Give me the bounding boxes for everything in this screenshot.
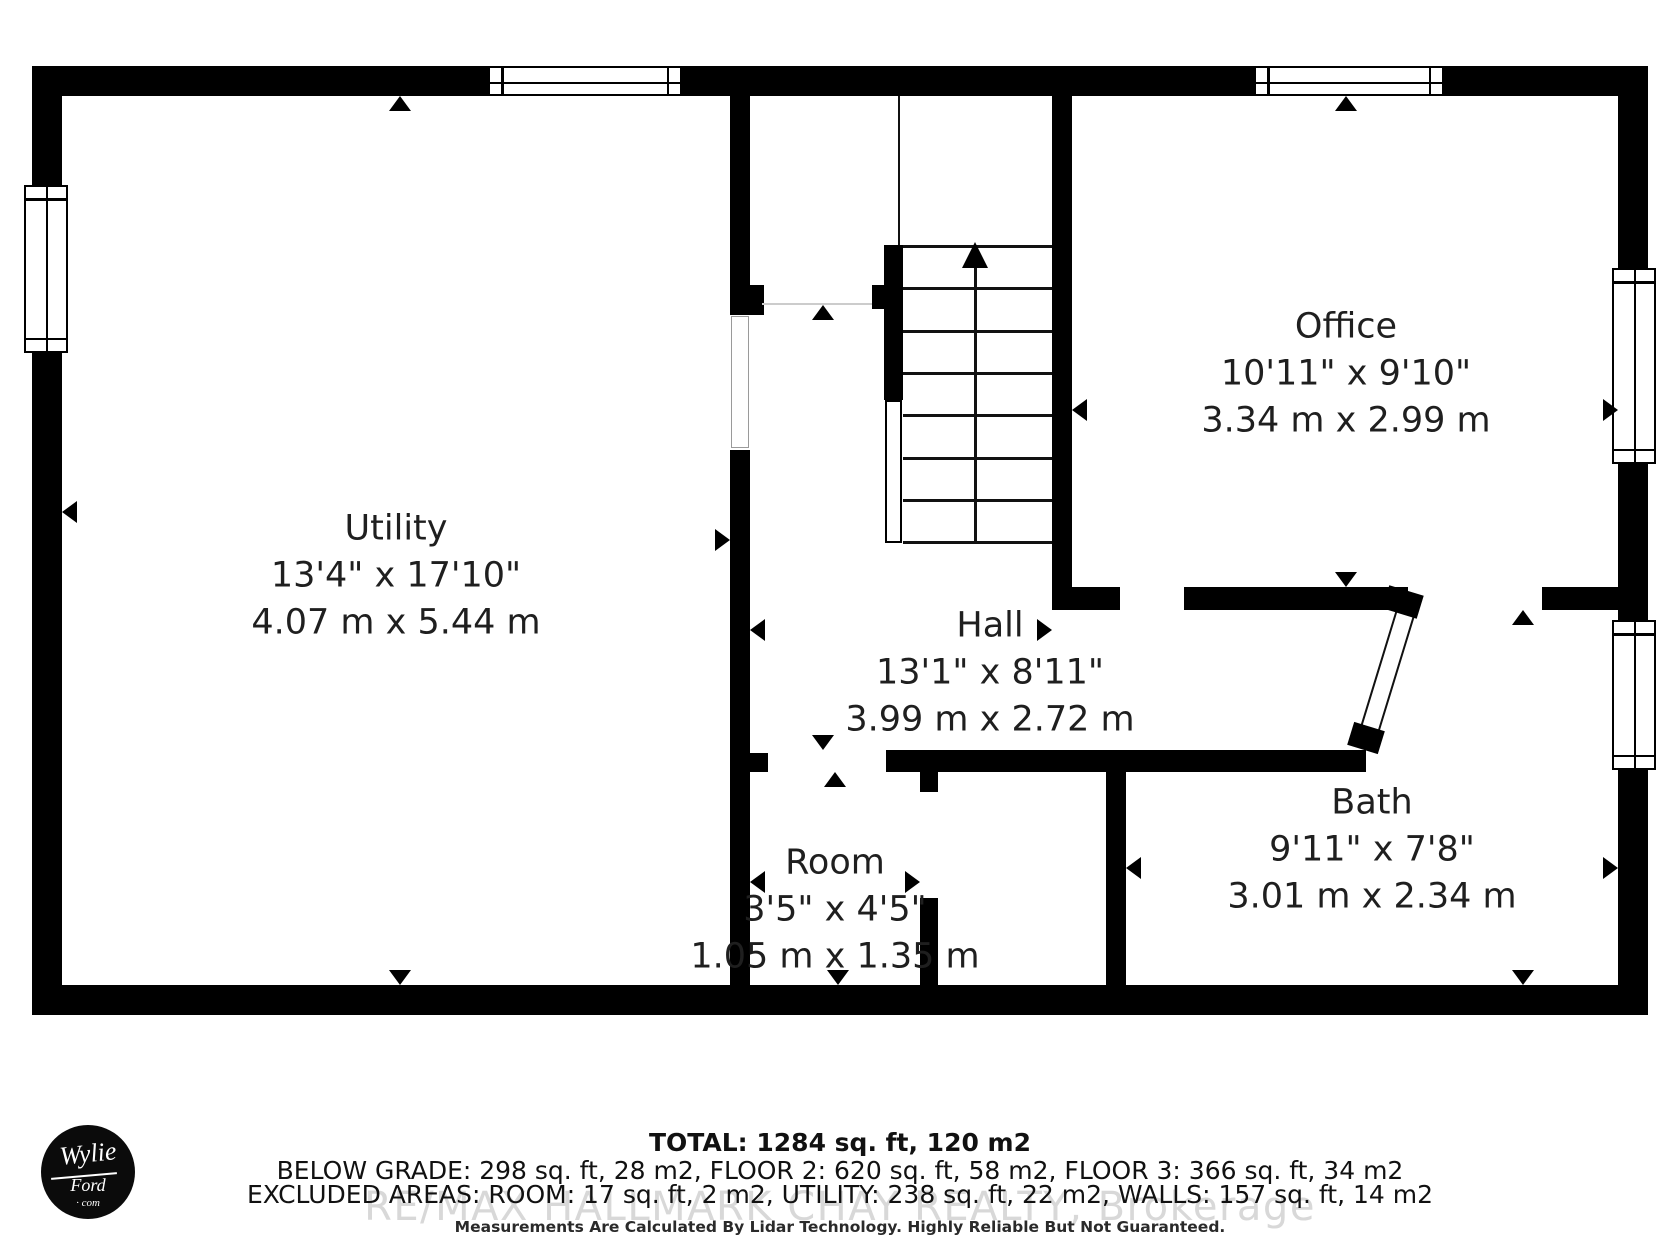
room-dim-imperial: 13'4" x 17'10"	[251, 553, 540, 600]
window-pane-line	[1256, 82, 1442, 84]
office-dimension-marker-icon	[1603, 399, 1618, 421]
hall-dimension-marker-icon	[812, 305, 834, 320]
stair-rail-jamb	[872, 285, 884, 309]
room-dim-metric: 1.05 m x 1.35 m	[690, 934, 979, 981]
floor-plan-page: Utility 13'4" x 17'10" 4.07 m x 5.44 m O…	[0, 0, 1680, 1260]
hall-bottom-wall	[886, 750, 1366, 772]
window-mullion	[1267, 68, 1270, 94]
stair-tread	[903, 287, 1052, 290]
room-name: Utility	[251, 506, 540, 553]
logo-line2: Ford	[41, 1175, 135, 1196]
stair-tread	[903, 330, 1052, 333]
utility-dimension-marker-icon	[389, 96, 411, 111]
office-bottom-wall-right	[1542, 587, 1618, 610]
room-dim-metric: 3.01 m x 2.34 m	[1227, 874, 1516, 921]
bath-left-wall	[1106, 772, 1126, 985]
stair-tread	[903, 541, 1052, 544]
room-dim-metric: 4.07 m x 5.44 m	[251, 600, 540, 647]
stair-rail-wall	[884, 245, 903, 400]
hall-door-leaf	[731, 316, 749, 448]
bath-dimension-marker-icon	[1512, 610, 1534, 625]
room-wall-jamb	[750, 753, 768, 772]
stair-tread	[903, 457, 1052, 460]
office-bottom-wall-left	[1052, 587, 1120, 610]
bath-dimension-marker-icon	[1512, 970, 1534, 985]
stair-tread	[903, 372, 1052, 375]
logo-line3: · com	[41, 1197, 135, 1209]
room-label-room: Room 3'5" x 4'5" 1.05 m x 1.35 m	[690, 840, 979, 981]
door-jamb	[750, 285, 764, 315]
utility-dimension-marker-icon	[389, 970, 411, 985]
window-pane-line	[1634, 622, 1636, 768]
hall-dimension-marker-icon	[1037, 619, 1052, 641]
window-mullion	[1614, 755, 1654, 758]
room-right-wall-upper-stub	[920, 772, 938, 792]
exterior-wall-bottom	[32, 985, 1648, 1015]
office-left-wall	[1052, 96, 1072, 610]
utility-dimension-marker-icon	[715, 529, 730, 551]
stair-tread	[903, 414, 1052, 417]
window-mullion	[501, 68, 504, 94]
window-mullion	[26, 198, 66, 201]
stair-railing	[885, 400, 902, 543]
window-bath-right	[1612, 620, 1656, 770]
room-dim-imperial: 10'11" x 9'10"	[1201, 351, 1490, 398]
room-name: Bath	[1227, 780, 1516, 827]
window-mullion	[1429, 68, 1432, 94]
room-dim-imperial: 9'11" x 7'8"	[1227, 827, 1516, 874]
window-mullion	[1614, 449, 1654, 452]
wylie-ford-logo: Wylie Ford · com	[41, 1125, 135, 1219]
stair-head-line	[898, 96, 900, 245]
exterior-wall-right	[1618, 66, 1648, 1015]
bath-dimension-marker-icon	[1603, 857, 1618, 879]
bath-dimension-marker-icon	[1126, 857, 1141, 879]
stairs-up-arrow-line	[974, 266, 977, 541]
window-mullion	[1614, 281, 1654, 284]
logo-line1: Wylie	[40, 1134, 137, 1174]
disclaimer-text: Measurements Are Calculated By Lidar Tec…	[0, 1218, 1680, 1236]
window-mullion	[667, 68, 670, 94]
room-label-office: Office 10'11" x 9'10" 3.34 m x 2.99 m	[1201, 304, 1490, 445]
hall-dimension-marker-icon	[750, 619, 765, 641]
window-pane-line	[1634, 270, 1636, 462]
window-mullion	[26, 338, 66, 341]
room-dimension-marker-icon	[824, 772, 846, 787]
room-dim-imperial: 3'5" x 4'5"	[690, 887, 979, 934]
total-area-text: TOTAL: 1284 sq. ft, 120 m2	[0, 1128, 1680, 1157]
room-label-utility: Utility 13'4" x 17'10" 4.07 m x 5.44 m	[251, 506, 540, 647]
hall-dimension-marker-icon	[812, 735, 834, 750]
utility-hall-wall-upper	[730, 96, 750, 315]
window-pane-line	[46, 187, 48, 351]
window-utility-top	[488, 66, 682, 96]
room-name: Room	[690, 840, 979, 887]
office-dimension-marker-icon	[1335, 96, 1357, 111]
stair-tread	[903, 499, 1052, 502]
window-mullion	[1614, 633, 1654, 636]
office-dimension-marker-icon	[1335, 572, 1357, 587]
stairs-up-arrow-icon	[962, 242, 988, 268]
room-label-hall: Hall 13'1" x 8'11" 3.99 m x 2.72 m	[845, 603, 1134, 744]
window-office-top	[1254, 66, 1444, 96]
room-name: Office	[1201, 304, 1490, 351]
utility-dimension-marker-icon	[62, 501, 77, 523]
window-office-right	[1612, 268, 1656, 464]
room-dim-imperial: 13'1" x 8'11"	[845, 650, 1134, 697]
room-dim-metric: 3.99 m x 2.72 m	[845, 697, 1134, 744]
window-pane-line	[490, 82, 680, 84]
bath-door-leaf	[1356, 601, 1417, 745]
office-dimension-marker-icon	[1072, 399, 1087, 421]
excluded-areas-text: EXCLUDED AREAS: ROOM: 17 sq. ft, 2 m2, U…	[0, 1180, 1680, 1209]
room-dim-metric: 3.34 m x 2.99 m	[1201, 398, 1490, 445]
room-label-bath: Bath 9'11" x 7'8" 3.01 m x 2.34 m	[1227, 780, 1516, 921]
office-bottom-wall-mid	[1184, 587, 1408, 610]
window-utility-left	[24, 185, 68, 353]
